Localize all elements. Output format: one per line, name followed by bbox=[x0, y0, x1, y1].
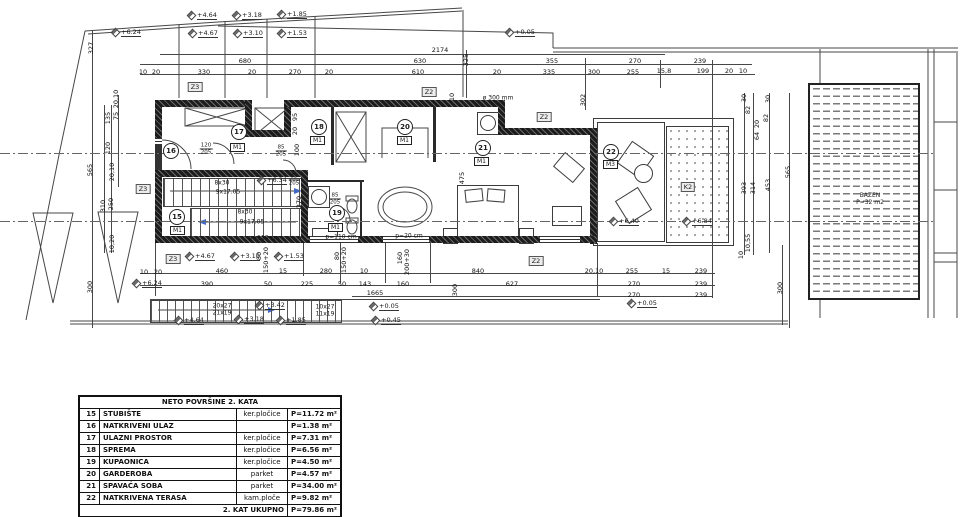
dimension-label: 270 bbox=[629, 57, 641, 65]
partition-wall bbox=[360, 180, 362, 236]
elevation-marker: +3.18 bbox=[233, 11, 262, 20]
elevation-value: +1.85 bbox=[287, 10, 307, 19]
dimension-line bbox=[712, 60, 713, 298]
table-row: 15STUBIŠTEker.pločiceP=11.72 m² bbox=[79, 409, 341, 421]
table-row: 18SPREMAker.pločiceP=6.56 m² bbox=[79, 445, 341, 457]
dimension-label-vertical: 300 bbox=[86, 281, 94, 293]
elevation-value: +1.53 bbox=[287, 29, 307, 38]
terrace-table bbox=[634, 164, 653, 183]
wall-type-tag: K2 bbox=[681, 182, 695, 192]
dimension-label-vertical: 300 bbox=[776, 282, 784, 294]
areas-table: NETO POVRŠINE 2. KATA 15STUBIŠTEker.ploč… bbox=[78, 395, 342, 517]
dimension-line bbox=[104, 105, 105, 253]
elevation-value: +6.40 bbox=[619, 217, 639, 226]
table-cell-area: P=4.50 m² bbox=[288, 457, 341, 469]
dimension-label-vertical: 150+20 bbox=[340, 247, 348, 273]
elevation-value: +3.18 bbox=[242, 11, 262, 20]
dimension-label-vertical: 302 bbox=[579, 94, 587, 106]
elevation-value: +1.53 bbox=[284, 252, 304, 261]
elevation-value: +1.85 bbox=[286, 316, 306, 325]
dimension-label: 255 bbox=[627, 68, 639, 76]
elevation-marker: +0.05 bbox=[370, 302, 399, 311]
dimension-label: 330 bbox=[198, 68, 210, 76]
dimension-label-vertical: 30 bbox=[740, 94, 748, 102]
table-row: 19KUPAONICAker.pločiceP=4.50 m² bbox=[79, 457, 341, 469]
dimension-label-vertical: 20,10 bbox=[108, 163, 116, 182]
dimension-label-vertical: 10,20 bbox=[108, 235, 116, 254]
areas-table-body: 15STUBIŠTEker.pločiceP=11.72 m²16NATKRIV… bbox=[79, 409, 341, 505]
elevation-diamond-icon bbox=[505, 28, 515, 38]
dimension-label: 15,8 bbox=[657, 67, 671, 75]
table-row: 21SPAVAĆA SOBAparketP=34.00 m² bbox=[79, 481, 341, 493]
dimension-label-vertical: 327 bbox=[87, 42, 95, 54]
dimension-label-vertical: 393 bbox=[740, 182, 748, 194]
wall-segment bbox=[155, 100, 252, 107]
dimension-label: 1665 bbox=[367, 289, 384, 297]
elevation-value: +4.67 bbox=[195, 252, 215, 261]
wall-type-tag: Z2 bbox=[537, 112, 552, 122]
washer-drum bbox=[311, 189, 327, 205]
dimension-label: 270 bbox=[628, 291, 640, 299]
elevation-marker: +6.34 bbox=[258, 176, 287, 185]
elevation-value: +3.18 bbox=[244, 315, 264, 324]
wall-segment bbox=[155, 236, 597, 243]
room-material-tag: M1 bbox=[397, 136, 412, 145]
dimension-line bbox=[352, 296, 712, 297]
room-material-tag: M1 bbox=[230, 143, 245, 152]
pool-label: BAZEN P=32 m2 bbox=[842, 192, 898, 206]
elevation-value: +3.10 bbox=[243, 29, 263, 38]
elevation-diamond-icon bbox=[132, 279, 142, 289]
round-column bbox=[480, 115, 496, 131]
room-material-tag: M1 bbox=[328, 223, 343, 232]
door-size-label: 85205 bbox=[276, 144, 287, 157]
dimension-label-vertical: 310 bbox=[99, 200, 107, 212]
elevation-diamond-icon bbox=[188, 29, 198, 39]
room-number-bubble: 21 bbox=[475, 140, 491, 156]
table-cell-mat: ker.pločice bbox=[237, 457, 288, 469]
pillow bbox=[464, 188, 483, 203]
dimension-label-vertical: 100 bbox=[293, 144, 301, 156]
dimension-label: 630 bbox=[414, 57, 426, 65]
plan-note: 9x17.05 bbox=[240, 219, 265, 226]
elevation-marker: +3.18 bbox=[235, 315, 264, 324]
dimension-label: 239 bbox=[695, 280, 707, 288]
dimension-label: 10 bbox=[140, 268, 148, 276]
dimension-label: 20 bbox=[493, 68, 501, 76]
table-cell-area: P=1.38 m² bbox=[288, 421, 341, 433]
dimension-label: 50 bbox=[264, 280, 272, 288]
dimension-label-vertical: 200+30 bbox=[403, 249, 411, 275]
room-number-bubble: 17 bbox=[231, 124, 247, 140]
elevation-value: +0.05 bbox=[379, 302, 399, 311]
table-cell-area: P=34.00 m² bbox=[288, 481, 341, 493]
dimension-label-vertical: 95 bbox=[291, 113, 299, 121]
plan-note: ø 300 mm bbox=[483, 95, 514, 102]
room-number-bubble: 19 bbox=[329, 205, 345, 221]
dimension-label: 239 bbox=[695, 291, 707, 299]
plan-note: 8x30 bbox=[237, 209, 252, 216]
dimension-label: 680 bbox=[239, 57, 251, 65]
table-cell-name: ULAZNI PROSTOR bbox=[100, 433, 237, 445]
elevation-marker: +3.42 bbox=[256, 301, 285, 310]
table-total-area: P=79.86 m² bbox=[288, 505, 341, 517]
room-number-bubble: 22 bbox=[603, 144, 619, 160]
dimension-label-vertical: 453 bbox=[764, 179, 772, 191]
dimension-label-vertical: 20 bbox=[291, 127, 299, 135]
dimension-line bbox=[430, 243, 431, 283]
dimension-label: 15 bbox=[279, 267, 287, 275]
wall-segment bbox=[498, 128, 597, 135]
plan-note: 20x27 bbox=[213, 303, 232, 310]
table-cell-num: 18 bbox=[79, 445, 100, 457]
pillow bbox=[486, 188, 505, 203]
elevation-marker: +4.64 bbox=[175, 316, 204, 325]
dimension-label: 50 bbox=[338, 280, 346, 288]
table-cell-num: 16 bbox=[79, 421, 100, 433]
table-cell-mat: parket bbox=[237, 481, 288, 493]
elevation-diamond-icon bbox=[232, 11, 242, 21]
door-size-label: 85205 bbox=[330, 192, 341, 205]
elevation-diamond-icon bbox=[234, 315, 244, 325]
elevation-diamond-icon bbox=[682, 217, 692, 227]
table-cell-name: SPAVAĆA SOBA bbox=[100, 481, 237, 493]
table-total-row: 2. KAT UKUPNO P=79.86 m² bbox=[79, 505, 341, 517]
dimension-label: 280 bbox=[320, 267, 332, 275]
room-material-tag: M1 bbox=[310, 136, 325, 145]
elevation-value: +0.45 bbox=[381, 316, 401, 325]
plan-note: 11x19 bbox=[316, 311, 335, 318]
table-total-label: 2. KAT UKUPNO bbox=[79, 505, 288, 517]
dimension-label-vertical: 250 bbox=[107, 198, 115, 210]
dimension-label: 239 bbox=[694, 57, 706, 65]
pool-area: P=32 m2 bbox=[856, 199, 884, 206]
plan-note: 9x17.05 bbox=[216, 189, 241, 196]
table-cell-area: P=11.72 m² bbox=[288, 409, 341, 421]
wall-segment bbox=[284, 100, 505, 107]
table-cell-num: 19 bbox=[79, 457, 100, 469]
dimension-label-vertical: 475 bbox=[458, 172, 466, 184]
table-cell-area: P=4.57 m² bbox=[288, 469, 341, 481]
window-opening bbox=[540, 236, 580, 243]
elevation-diamond-icon bbox=[255, 301, 265, 311]
dimension-label-vertical: 20 bbox=[753, 120, 761, 128]
door-height: 205 bbox=[276, 152, 287, 158]
elevation-value: +0.05 bbox=[515, 28, 535, 37]
wall-segment bbox=[590, 128, 597, 244]
elevation-marker: +0.05 bbox=[506, 28, 535, 37]
table-cell-num: 21 bbox=[79, 481, 100, 493]
elevation-marker: +0.45 bbox=[372, 316, 401, 325]
table-cell-mat bbox=[237, 421, 288, 433]
door-height: 205 bbox=[201, 150, 212, 156]
dimension-label: 10 bbox=[139, 68, 147, 76]
table-row: 22NATKRIVENA TERASAkam.pločeP=9.82 m² bbox=[79, 493, 341, 505]
blueprint-canvas: BAZEN P=32 m2 21746806303552702391020330… bbox=[0, 0, 960, 517]
dimension-label: 239 bbox=[695, 267, 707, 275]
elevation-marker: +6.24 bbox=[133, 279, 162, 288]
room-number-bubble: 15 bbox=[169, 209, 185, 225]
elevation-diamond-icon bbox=[369, 302, 379, 312]
elevation-marker: +0.05 bbox=[628, 299, 657, 308]
elevation-diamond-icon bbox=[257, 176, 267, 186]
elevation-diamond-icon bbox=[233, 29, 243, 39]
dimension-line bbox=[150, 299, 600, 300]
table-cell-mat: kam.ploče bbox=[237, 493, 288, 505]
dimension-label: 10 bbox=[739, 67, 747, 75]
elevation-diamond-icon bbox=[274, 252, 284, 262]
dimension-label-vertical: 120 bbox=[104, 142, 112, 154]
table-cell-name: SPREMA bbox=[100, 445, 237, 457]
sofa bbox=[552, 206, 582, 226]
elevation-marker: +6.24 bbox=[112, 28, 141, 37]
room-material-tag: M1 bbox=[170, 226, 185, 235]
dimension-label-vertical: 565 bbox=[86, 164, 94, 176]
dimension-label: 160 bbox=[397, 280, 409, 288]
table-row: 16NATKRIVENI ULAZP=1.38 m² bbox=[79, 421, 341, 433]
elevation-diamond-icon bbox=[371, 316, 381, 326]
table-cell-mat: ker.pločice bbox=[237, 409, 288, 421]
dimension-label: 20 bbox=[725, 67, 733, 75]
dimension-label-vertical: 10 bbox=[448, 93, 456, 101]
elevation-marker: +1.53 bbox=[278, 29, 307, 38]
dimension-line bbox=[753, 93, 754, 255]
axis-dashdot-line bbox=[0, 221, 935, 222]
elevation-marker: +6.84 bbox=[683, 217, 712, 226]
dimension-label-vertical: 75 bbox=[112, 112, 120, 120]
dimension-label: 2174 bbox=[432, 46, 449, 54]
elevation-marker: +6.40 bbox=[610, 217, 639, 226]
dimension-label: 355 bbox=[546, 57, 558, 65]
elevation-value: +3.10 bbox=[240, 252, 260, 261]
dimension-label: 20 bbox=[248, 68, 256, 76]
dimension-label: 255 bbox=[626, 267, 638, 275]
room-material-tag: M1 bbox=[474, 157, 489, 166]
dimension-label-vertical: 20,10 bbox=[112, 90, 120, 109]
dimension-label-vertical: 270 bbox=[295, 196, 303, 208]
dimension-label: 390 bbox=[201, 280, 213, 288]
table-cell-name: NATKRIVENI ULAZ bbox=[100, 421, 237, 433]
elevation-marker: +1.85 bbox=[278, 10, 307, 19]
elevation-diamond-icon bbox=[627, 299, 637, 309]
dimension-label-vertical: 565 bbox=[784, 166, 792, 178]
elevation-value: +3.42 bbox=[265, 301, 285, 310]
table-cell-mat: ker.pločice bbox=[237, 445, 288, 457]
elevation-value: +6.24 bbox=[142, 279, 162, 288]
elevation-diamond-icon bbox=[174, 316, 184, 326]
dimension-label: 460 bbox=[216, 267, 228, 275]
room-number-bubble: 16 bbox=[163, 143, 179, 159]
dimension-label: 15 bbox=[662, 267, 670, 275]
elevation-marker: +4.67 bbox=[186, 252, 215, 261]
door-size-label: 85205 bbox=[289, 173, 300, 186]
dimension-label: 225 bbox=[301, 280, 313, 288]
dimension-label-vertical: 82 bbox=[762, 114, 770, 122]
elevation-diamond-icon bbox=[277, 29, 287, 39]
dimension-label: 335 bbox=[543, 68, 555, 76]
plan-note: p=110 cm bbox=[325, 234, 356, 241]
floor-plan: BAZEN P=32 m2 21746806303552702391020330… bbox=[0, 0, 960, 390]
dimension-label-vertical: 135 bbox=[104, 112, 112, 124]
dimension-line bbox=[789, 93, 790, 328]
plan-note: p=20 cm bbox=[395, 233, 423, 240]
table-cell-mat: ker.pločice bbox=[237, 433, 288, 445]
elevation-diamond-icon bbox=[276, 316, 286, 326]
dimension-label-vertical: 150+20 bbox=[262, 247, 270, 273]
elevation-value: +6.24 bbox=[121, 28, 141, 37]
dimension-label: 20 bbox=[325, 68, 333, 76]
table-cell-area: P=6.56 m² bbox=[288, 445, 341, 457]
elevation-value: +4.67 bbox=[198, 29, 218, 38]
elevation-diamond-icon bbox=[277, 10, 287, 20]
partition-wall bbox=[308, 180, 364, 182]
elevation-marker: +4.64 bbox=[188, 11, 217, 20]
dimension-label: 840 bbox=[472, 267, 484, 275]
elevation-marker: +3.10 bbox=[231, 252, 260, 261]
elevation-value: +4.64 bbox=[184, 316, 204, 325]
table-cell-name: GARDEROBA bbox=[100, 469, 237, 481]
plan-note: 10x27 bbox=[316, 304, 335, 311]
dimension-line bbox=[385, 243, 386, 283]
wall-type-tag: Z3 bbox=[136, 184, 151, 194]
dimension-line bbox=[744, 93, 745, 255]
dimension-label: 610 bbox=[412, 68, 424, 76]
table-cell-name: KUPAONICA bbox=[100, 457, 237, 469]
door-size-label: 120205 bbox=[200, 142, 213, 155]
dimension-label: 20 bbox=[152, 68, 160, 76]
table-cell-num: 20 bbox=[79, 469, 100, 481]
table-cell-num: 22 bbox=[79, 493, 100, 505]
dimension-label-vertical: 82 bbox=[744, 106, 752, 114]
dimension-label-vertical: 325 bbox=[462, 54, 470, 66]
table-cell-num: 17 bbox=[79, 433, 100, 445]
window-opening bbox=[155, 138, 162, 170]
pool-name: BAZEN bbox=[860, 192, 881, 199]
plan-note: p=110 cm bbox=[248, 235, 279, 242]
dimension-label: 270 bbox=[289, 68, 301, 76]
elevation-value: +6.34 bbox=[267, 176, 287, 185]
plan-note: 8x30 bbox=[214, 180, 229, 187]
elevation-diamond-icon bbox=[230, 252, 240, 262]
dimension-label-vertical: 10 bbox=[737, 251, 745, 259]
dimension-label: 143 bbox=[359, 280, 371, 288]
dimension-label: 270 bbox=[628, 280, 640, 288]
elevation-marker: +1.53 bbox=[275, 252, 304, 261]
table-cell-name: STUBIŠTE bbox=[100, 409, 237, 421]
room-number-bubble: 20 bbox=[397, 119, 413, 135]
table-row: 17ULAZNI PROSTORker.pločiceP=7.31 m² bbox=[79, 433, 341, 445]
elevation-marker: +3.10 bbox=[234, 29, 263, 38]
wall-type-tag: Z2 bbox=[422, 87, 437, 97]
room-number-bubble: 18 bbox=[311, 119, 327, 135]
elevation-diamond-icon bbox=[111, 28, 121, 38]
dimension-line bbox=[118, 95, 119, 187]
partition-wall bbox=[331, 107, 334, 165]
plan-note: 21x19 bbox=[213, 310, 232, 317]
elevation-marker: +1.85 bbox=[277, 316, 306, 325]
table-cell-name: NATKRIVENA TERASA bbox=[100, 493, 237, 505]
elevation-diamond-icon bbox=[609, 217, 619, 227]
dimension-label-vertical: 314 bbox=[749, 182, 757, 194]
dimension-label: 627 bbox=[506, 280, 518, 288]
dimension-line bbox=[160, 54, 665, 55]
table-cell-area: P=9.82 m² bbox=[288, 493, 341, 505]
dimension-label-vertical: 64 bbox=[753, 132, 761, 140]
door-width: 85 bbox=[330, 192, 341, 199]
wall-type-tag: Z3 bbox=[166, 254, 181, 264]
wall-type-tag: Z3 bbox=[188, 82, 203, 92]
table-row: 20GARDEROBAparketP=4.57 m² bbox=[79, 469, 341, 481]
table-title: NETO POVRŠINE 2. KATA bbox=[79, 396, 341, 409]
dimension-label-vertical: 10,55 bbox=[744, 234, 752, 253]
table-cell-area: P=7.31 m² bbox=[288, 433, 341, 445]
dimension-label: 300 bbox=[588, 68, 600, 76]
room-material-tag: M3 bbox=[603, 160, 618, 169]
table-cell-mat: parket bbox=[237, 469, 288, 481]
door-width: 120 bbox=[200, 142, 213, 149]
door-width: 85 bbox=[289, 173, 300, 180]
dimension-label-vertical: 300 bbox=[451, 284, 459, 296]
dimension-label: 20,10 bbox=[585, 267, 604, 275]
dimension-label: 10 bbox=[360, 267, 368, 275]
dimension-label: 20 bbox=[154, 268, 162, 276]
door-height: 205 bbox=[289, 181, 300, 187]
dimension-label: 199 bbox=[697, 67, 709, 75]
wall-type-tag: Z2 bbox=[529, 256, 544, 266]
table-cell-num: 15 bbox=[79, 409, 100, 421]
elevation-marker: +4.67 bbox=[189, 29, 218, 38]
dimension-label-vertical: 30 bbox=[764, 95, 772, 103]
elevation-value: +6.84 bbox=[692, 217, 712, 226]
elevation-diamond-icon bbox=[187, 11, 197, 21]
elevation-diamond-icon bbox=[185, 252, 195, 262]
door-width: 85 bbox=[276, 144, 287, 151]
elevation-value: +4.64 bbox=[197, 11, 217, 20]
axis-dashdot-line bbox=[0, 153, 935, 154]
elevation-value: +0.05 bbox=[637, 299, 657, 308]
